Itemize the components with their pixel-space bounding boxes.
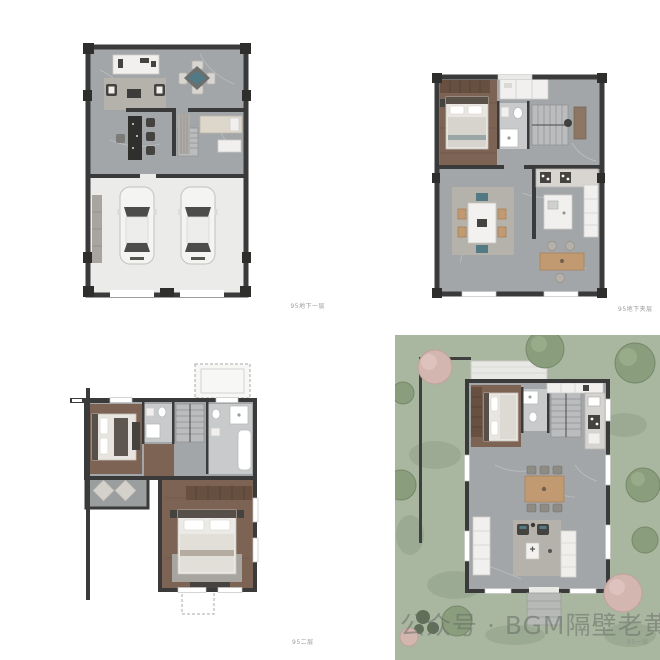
garage-door-opening xyxy=(180,290,224,297)
cabinet-icon xyxy=(473,517,490,575)
window-icon xyxy=(606,399,611,421)
dining-area xyxy=(452,187,514,255)
sink-icon xyxy=(211,428,220,436)
window-icon xyxy=(465,531,470,561)
floor-lamp-icon xyxy=(548,549,552,553)
floorplan-basement-drawing xyxy=(80,40,260,308)
car-icon xyxy=(118,187,157,264)
window-icon xyxy=(216,398,238,403)
sink-icon xyxy=(146,408,154,416)
mezzanine-bedroom xyxy=(440,80,497,166)
garage-door-opening xyxy=(110,290,154,297)
car-icon xyxy=(179,187,218,264)
bed-icon xyxy=(92,414,136,460)
window-icon xyxy=(498,75,532,80)
window-icon xyxy=(544,292,578,297)
bar-stool-icon xyxy=(116,134,125,143)
stairs-icon xyxy=(532,105,568,145)
bedroom-2 xyxy=(90,404,142,474)
armchair-icon xyxy=(537,524,549,535)
dresser-icon xyxy=(132,422,140,450)
sink-icon xyxy=(501,107,509,117)
plan-label-basement-mezzanine: 95地下夹层 xyxy=(618,306,653,314)
toilet-icon xyxy=(158,407,166,417)
armchair-icon xyxy=(517,524,529,535)
sink-icon xyxy=(588,397,600,406)
dining-chair-icon xyxy=(540,466,549,474)
window-icon xyxy=(465,455,470,481)
dining-chair-icon xyxy=(498,209,506,219)
cabinet-icon xyxy=(584,185,598,237)
dashed-roof-outline xyxy=(182,590,214,614)
bench-icon xyxy=(218,140,241,152)
floor-plan-sheet: 95地下一层 95地下夹层 95二层 95一层 公众号 · BGM隔壁老黄 xyxy=(0,0,660,660)
kitchen xyxy=(536,169,598,237)
bathroom-icon xyxy=(497,101,530,149)
bathtub-icon xyxy=(238,430,251,470)
stove-icon xyxy=(560,172,571,183)
floorplan-mezzanine-drawing xyxy=(432,73,607,301)
dining-chair-icon xyxy=(527,466,536,474)
stove-icon xyxy=(588,415,600,429)
watermark-text: 公众号 · BGM隔壁老黄 xyxy=(400,606,658,642)
wardrobe-icon xyxy=(440,80,490,93)
dining-chair-icon xyxy=(476,193,488,201)
shower-icon xyxy=(146,424,160,438)
sofa-icon xyxy=(561,531,576,577)
window-icon xyxy=(253,538,258,562)
bar-stool-icon xyxy=(146,146,155,155)
coffee-table-icon xyxy=(127,89,141,98)
hallway-floor xyxy=(144,444,174,478)
floorplan-basement-level-1 xyxy=(80,40,260,308)
plan-label-second-floor: 95二层 xyxy=(292,639,314,647)
interior-wall xyxy=(172,112,176,156)
dining-chair-icon xyxy=(527,504,536,512)
dining-chair-icon xyxy=(458,227,466,237)
stool-icon xyxy=(548,242,557,251)
sofa-rug-icon xyxy=(104,78,166,110)
garage-floor xyxy=(90,178,244,293)
bathroom-icon xyxy=(142,402,175,444)
stairs-icon xyxy=(551,393,581,437)
dining-area xyxy=(525,466,564,512)
fence-icon xyxy=(419,357,422,543)
dining-chair-icon xyxy=(458,209,466,219)
dining-chair-icon xyxy=(553,504,562,512)
window-icon xyxy=(253,498,258,522)
window-icon xyxy=(570,589,596,594)
desk-chair-icon xyxy=(564,119,572,127)
floorplan-second-floor-drawing xyxy=(70,358,260,620)
window-icon xyxy=(178,588,206,593)
window-icon xyxy=(606,525,611,559)
bar-stool-icon xyxy=(146,132,155,141)
interior-wall xyxy=(90,174,244,178)
bathroom-icon xyxy=(521,387,550,433)
window-icon xyxy=(606,455,611,485)
dining-chair-icon xyxy=(553,466,562,474)
first-floor-bedroom xyxy=(471,385,521,447)
dining-chair-icon xyxy=(476,245,488,253)
bed-icon xyxy=(446,97,488,149)
floorplan-second-floor xyxy=(70,358,260,620)
window-icon xyxy=(218,588,242,593)
dining-chair-icon xyxy=(540,504,549,512)
boundary-wall xyxy=(86,388,90,600)
interior-wall xyxy=(532,169,536,239)
nightstand-icon xyxy=(237,510,244,518)
nightstand-icon xyxy=(170,510,177,518)
stove-icon xyxy=(540,172,551,183)
sink-icon xyxy=(548,201,558,209)
fridge-icon xyxy=(588,433,600,444)
bar-stool-icon xyxy=(146,118,155,127)
window-icon xyxy=(485,589,511,594)
bed-icon xyxy=(484,393,518,441)
window-icon xyxy=(110,398,132,403)
tv-console-icon xyxy=(190,582,230,588)
stairs-icon xyxy=(176,404,204,442)
balcony-icon xyxy=(86,478,148,508)
toilet-icon xyxy=(212,409,220,419)
stool-icon xyxy=(566,242,575,251)
bathroom-icon xyxy=(206,402,252,474)
master-bed-icon xyxy=(178,510,236,574)
kitchen-island-icon xyxy=(544,195,572,229)
dining-chair-icon xyxy=(498,227,506,237)
plan-label-basement-level-1: 95地下一层 xyxy=(285,303,325,311)
tv-console-icon xyxy=(113,55,159,74)
toilet-icon xyxy=(514,108,523,119)
stool-icon xyxy=(556,274,565,283)
window-icon xyxy=(462,292,496,297)
window-icon xyxy=(72,399,82,402)
nightstand-icon xyxy=(440,99,445,107)
floorplan-basement-mezzanine xyxy=(432,73,607,301)
wardrobe-icon xyxy=(471,387,482,437)
closet-icon xyxy=(500,79,548,99)
toilet-icon xyxy=(529,412,537,422)
